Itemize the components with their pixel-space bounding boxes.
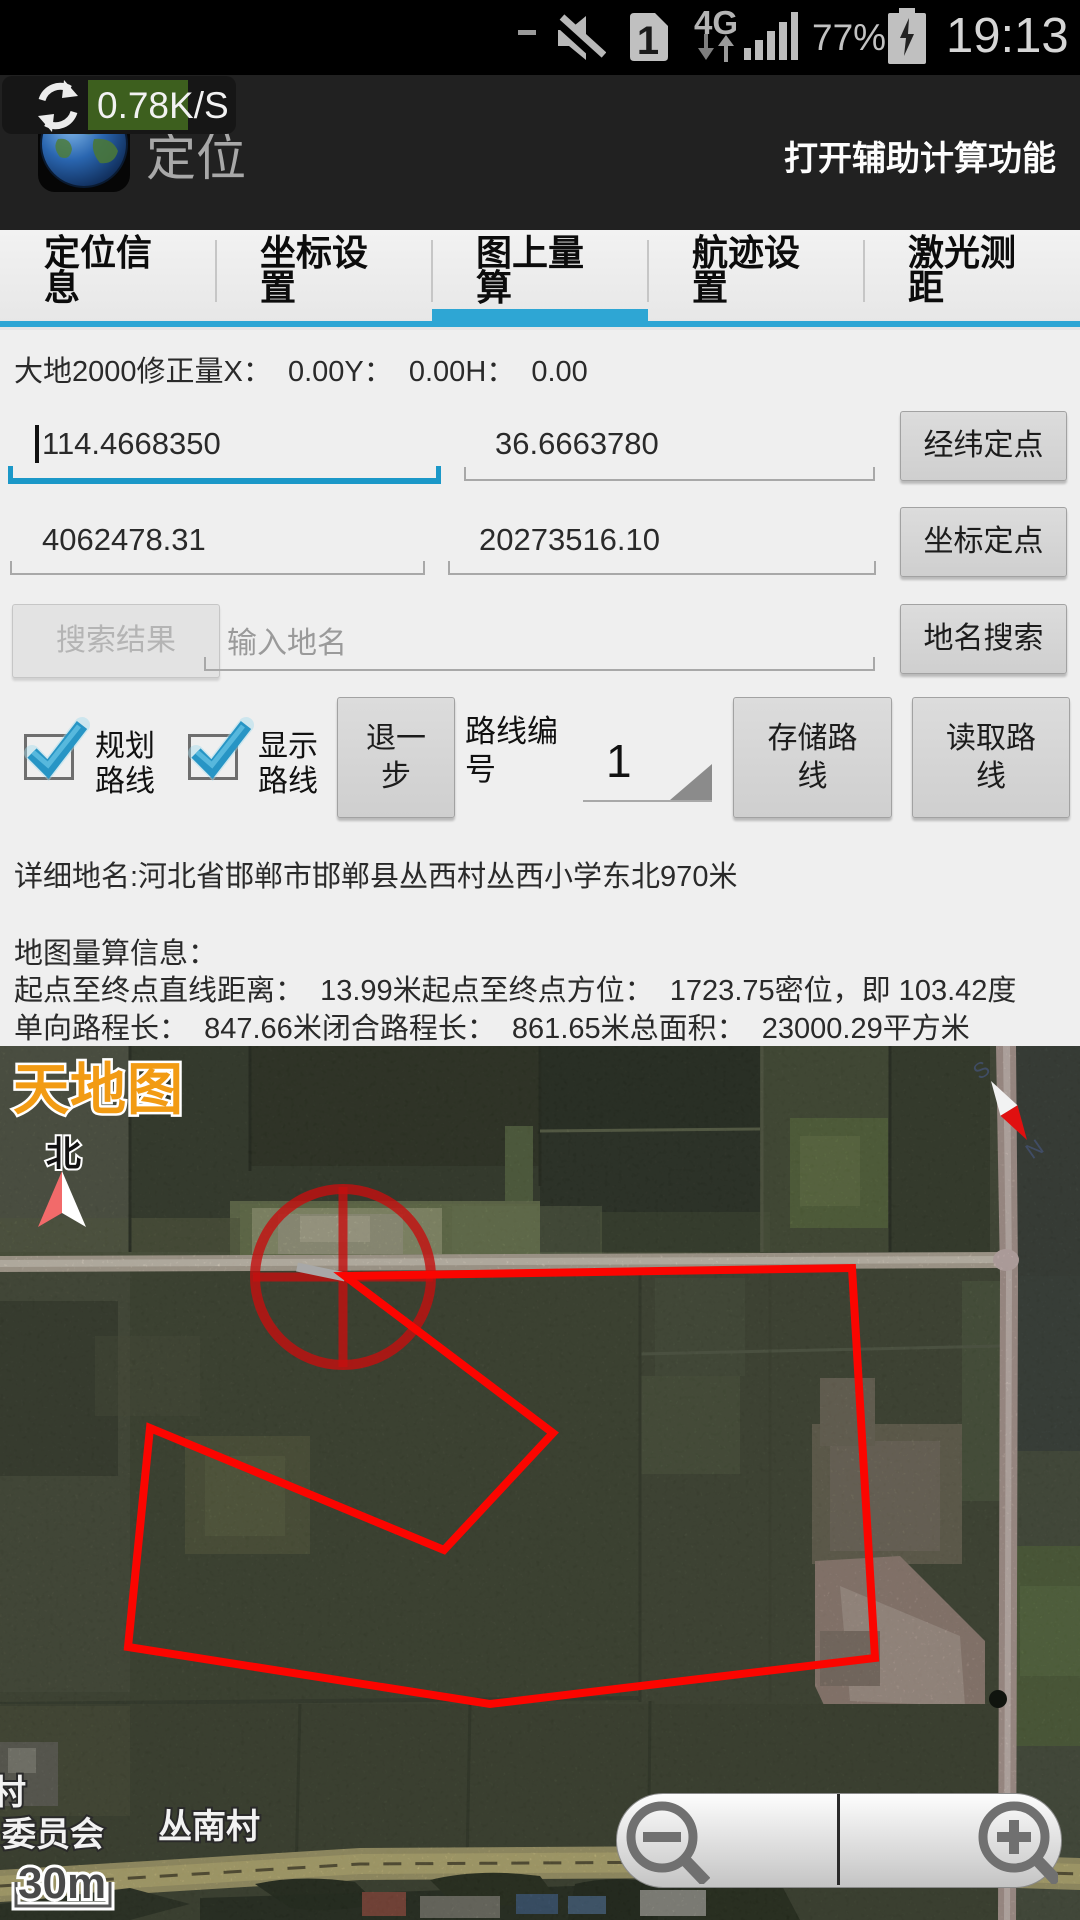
svg-text:1: 1 [637, 19, 659, 61]
svg-text:村: 村 [0, 1774, 26, 1812]
svg-text:丛南村: 丛南村 [158, 1808, 260, 1846]
svg-text:30m: 30m [18, 1859, 106, 1908]
svg-text:委员会: 委员会 [2, 1816, 104, 1854]
svg-text:天地图: 天地图 [13, 1060, 184, 1122]
svg-text:北: 北 [46, 1135, 81, 1174]
